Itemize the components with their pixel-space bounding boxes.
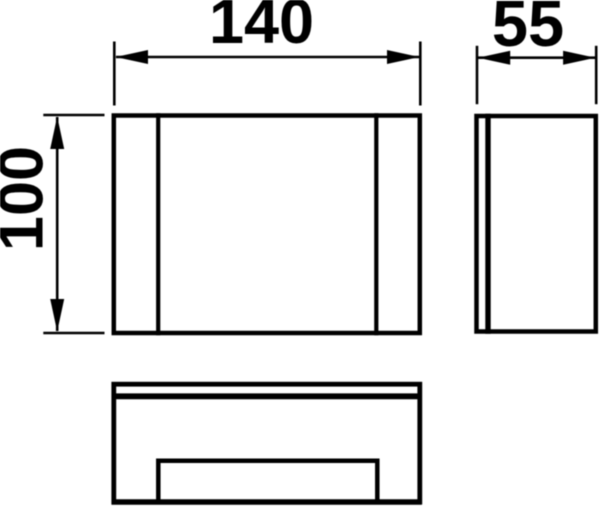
svg-text:55: 55 bbox=[492, 0, 564, 60]
svg-text:140: 140 bbox=[209, 0, 314, 57]
svg-text:100: 100 bbox=[0, 146, 57, 251]
